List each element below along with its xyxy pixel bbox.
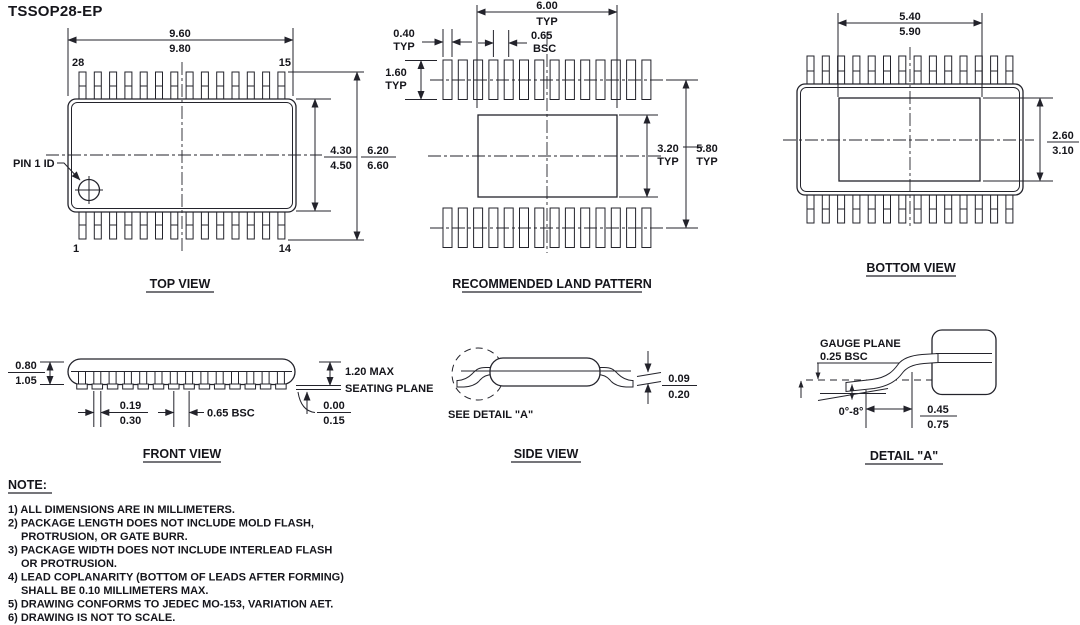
- side-view: 0.09 0.20 SEE DETAIL "A" SIDE VIEW: [448, 348, 697, 462]
- dim-body-thickness-lower: 1.05: [15, 375, 36, 387]
- gauge-plane-label: GAUGE PLANE: [820, 338, 901, 350]
- lead-angle-value: 0°-8°: [839, 406, 864, 418]
- dim-overall-width-upper: 6.20: [367, 145, 388, 157]
- note-line: 4) LEAD COPLANARITY (BOTTOM OF LEADS AFT…: [8, 572, 344, 584]
- gullwing-lead-right: [597, 368, 633, 388]
- dim-pitch-value: 0.65: [531, 30, 552, 42]
- dim-thermal-height-value: 3.20: [657, 143, 678, 155]
- dim-pitch-qual: BSC: [533, 43, 556, 55]
- dim-epad-height-lower: 3.10: [1052, 145, 1073, 157]
- land-pattern-label: RECOMMENDED LAND PATTERN: [452, 277, 652, 291]
- dim-witness-tick: [637, 382, 661, 386]
- note-line: 3) PACKAGE WIDTH DOES NOT INCLUDE INTERL…: [8, 545, 332, 557]
- bottom-view-label: BOTTOM VIEW: [866, 261, 956, 275]
- side-view-label: SIDE VIEW: [514, 447, 579, 461]
- front-view: 0.80 1.05 1.20 MAX SEATING PLANE 0.00 0.…: [8, 359, 433, 462]
- package-drawing-page: TSSOP28-EP PIN 1 ID 28 15 1 14 9.60 9.80…: [0, 0, 1080, 625]
- detail-a-view: GAUGE PLANE 0.25 BSC 0°-8° 0.45 0.75 DET…: [801, 330, 996, 464]
- detail-a-label: DETAIL "A": [870, 449, 938, 463]
- dim-lead-thickness-upper: 0.09: [668, 373, 689, 385]
- dim-witness-tick: [637, 373, 661, 377]
- notes: NOTE: 1) ALL DIMENSIONS ARE IN MILLIMETE…: [8, 478, 344, 624]
- land-pattern-view: 6.00 TYP 0.40 TYP 0.65 BSC 1.60 TYP 3.20…: [385, 0, 717, 292]
- dim-body-thickness-upper: 0.80: [15, 360, 36, 372]
- dim-standoff-lower: 0.15: [323, 415, 344, 427]
- dim-lead-width-lower: 0.30: [120, 415, 141, 427]
- dim-lead-thickness-lower: 0.20: [668, 389, 689, 401]
- pin-number-15: 15: [279, 57, 291, 69]
- dim-foot-length-lower: 0.75: [927, 419, 948, 431]
- dim-epad-height-upper: 2.60: [1052, 130, 1073, 142]
- notes-heading: NOTE:: [8, 478, 47, 492]
- top-view-label: TOP VIEW: [150, 277, 211, 291]
- pin1-label: PIN 1 ID: [13, 158, 55, 170]
- note-line: 5) DRAWING CONFORMS TO JEDEC MO-153, VAR…: [8, 599, 333, 611]
- note-line: 6) DRAWING IS NOT TO SCALE.: [8, 612, 175, 624]
- dim-epad-width-lower: 5.90: [899, 26, 920, 38]
- dim-front-pitch: 0.65 BSC: [207, 408, 255, 420]
- top-view: PIN 1 ID 28 15 1 14 9.60 9.80 4.30 4.50 …: [13, 28, 396, 292]
- package-body-profile: [490, 358, 600, 386]
- dim-span-value: 6.00: [536, 0, 557, 12]
- gullwing-lead-left: [457, 368, 493, 388]
- seating-plane-label: SEATING PLANE: [345, 383, 433, 395]
- dim-pad-length-qual: TYP: [385, 80, 406, 92]
- dim-epad-width-upper: 5.40: [899, 11, 920, 23]
- dim-body-width-lower: 4.50: [330, 160, 351, 172]
- dim-thermal-height-qual: TYP: [657, 156, 678, 168]
- dim-length-lower: 9.80: [169, 43, 190, 55]
- dim-body-width-upper: 4.30: [330, 145, 351, 157]
- drawing-title: TSSOP28-EP: [8, 3, 103, 20]
- dim-row-span-value: 5.80: [696, 143, 717, 155]
- dim-overall-width-lower: 6.60: [367, 160, 388, 172]
- note-line: SHALL BE 0.10 MILLIMETERS MAX.: [21, 585, 208, 597]
- dim-span-qual: TYP: [536, 16, 557, 28]
- pin-number-14: 14: [279, 243, 292, 255]
- dim-pad-width-value: 0.40: [393, 28, 414, 40]
- drawing-canvas: TSSOP28-EP PIN 1 ID 28 15 1 14 9.60 9.80…: [0, 0, 1080, 625]
- note-line: PROTRUSION, OR GATE BURR.: [21, 531, 188, 543]
- dim-lead-width-upper: 0.19: [120, 400, 141, 412]
- dim-length-upper: 9.60: [169, 28, 190, 40]
- dim-row-span-qual: TYP: [696, 156, 717, 168]
- see-detail-label: SEE DETAIL "A": [448, 409, 533, 421]
- note-line: 2) PACKAGE LENGTH DOES NOT INCLUDE MOLD …: [8, 518, 314, 530]
- dim-height-max: 1.20 MAX: [345, 366, 395, 378]
- note-line: OR PROTRUSION.: [21, 558, 117, 570]
- dim-standoff-upper: 0.00: [323, 400, 344, 412]
- pin-number-28: 28: [72, 57, 84, 69]
- front-view-label: FRONT VIEW: [143, 447, 222, 461]
- dim-pad-width-qual: TYP: [393, 41, 414, 53]
- dim-pad-length-value: 1.60: [385, 67, 406, 79]
- note-line: 1) ALL DIMENSIONS ARE IN MILLIMETERS.: [8, 504, 235, 516]
- pin-number-1: 1: [73, 243, 79, 255]
- gauge-offset-value: 0.25 BSC: [820, 351, 868, 363]
- dim-foot-length-upper: 0.45: [927, 404, 948, 416]
- bottom-view: 5.40 5.90 2.60 3.10 BOTTOM VIEW: [783, 11, 1079, 276]
